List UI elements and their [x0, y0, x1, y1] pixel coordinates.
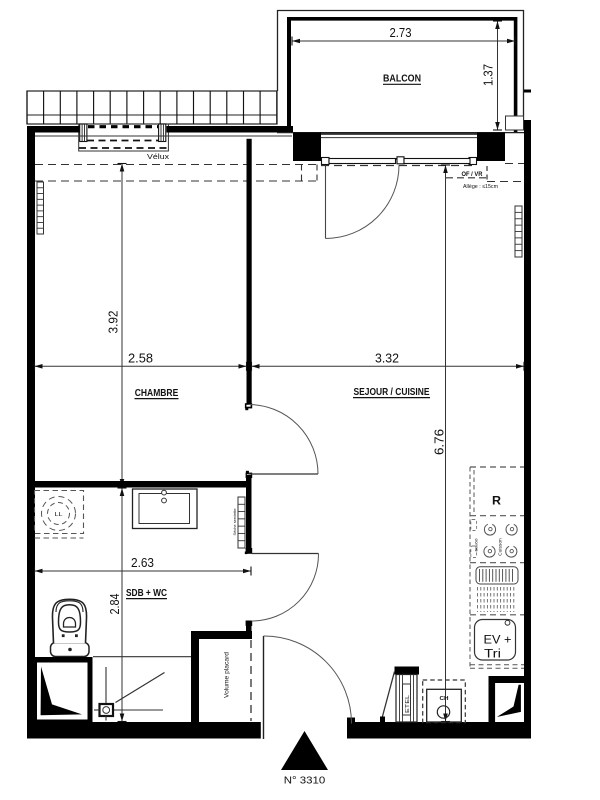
svg-text:2.73: 2.73 — [390, 25, 412, 40]
svg-text:BALCON: BALCON — [383, 74, 421, 85]
svg-text:6.76: 6.76 — [432, 429, 447, 455]
svg-text:Vélux: Vélux — [147, 152, 169, 161]
svg-text:2.84: 2.84 — [107, 594, 122, 615]
svg-text:3.92: 3.92 — [106, 311, 121, 334]
svg-text:SDB + WC: SDB + WC — [126, 588, 167, 599]
svg-text:3.32: 3.32 — [375, 350, 399, 365]
svg-text:Volume placard: Volume placard — [224, 651, 231, 698]
svg-text:ETEL: ETEL — [405, 694, 411, 713]
svg-text:CHAMBRE: CHAMBRE — [135, 388, 179, 399]
svg-text:N° 3310: N° 3310 — [284, 775, 326, 787]
svg-text:60x60: 60x60 — [474, 539, 478, 552]
svg-text:LL: LL — [55, 512, 63, 518]
svg-text:2.63: 2.63 — [131, 555, 154, 570]
svg-text:Allège : ≤15cm: Allège : ≤15cm — [463, 184, 498, 190]
svg-text:1.37: 1.37 — [481, 64, 496, 86]
svg-text:EV +: EV + — [484, 635, 512, 647]
svg-text:2.58: 2.58 — [128, 350, 153, 365]
svg-text:SEJOUR / CUISINE: SEJOUR / CUISINE — [354, 387, 430, 398]
svg-text:OF / VR: OF / VR — [462, 171, 483, 178]
svg-text:R: R — [492, 494, 501, 508]
svg-text:Tri: Tri — [484, 649, 501, 661]
svg-text:Sèche serviette: Sèche serviette — [232, 508, 237, 536]
svg-text:CH: CH — [440, 696, 449, 702]
svg-text:Cuisson: Cuisson — [498, 538, 503, 556]
